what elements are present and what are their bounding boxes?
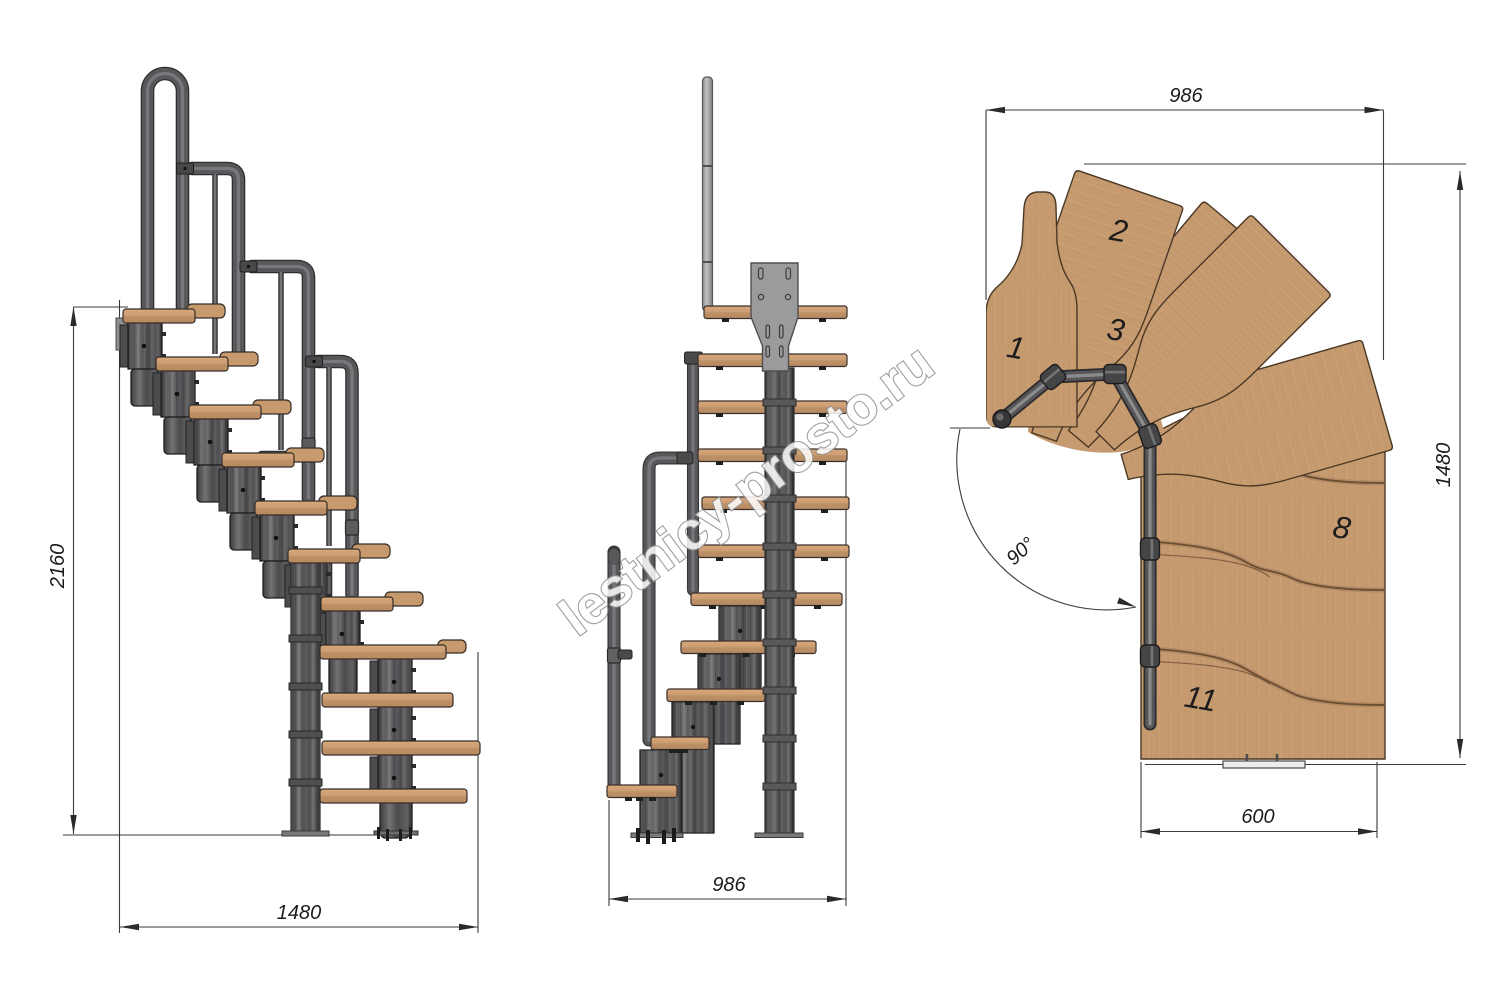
svg-text:2160: 2160 [47, 544, 69, 590]
svg-text:1480: 1480 [277, 902, 322, 924]
svg-text:1480: 1480 [1433, 443, 1455, 488]
svg-text:986: 986 [1169, 85, 1203, 107]
svg-text:600: 600 [1241, 806, 1274, 828]
svg-text:11: 11 [1182, 679, 1220, 719]
svg-text:986: 986 [712, 874, 746, 896]
